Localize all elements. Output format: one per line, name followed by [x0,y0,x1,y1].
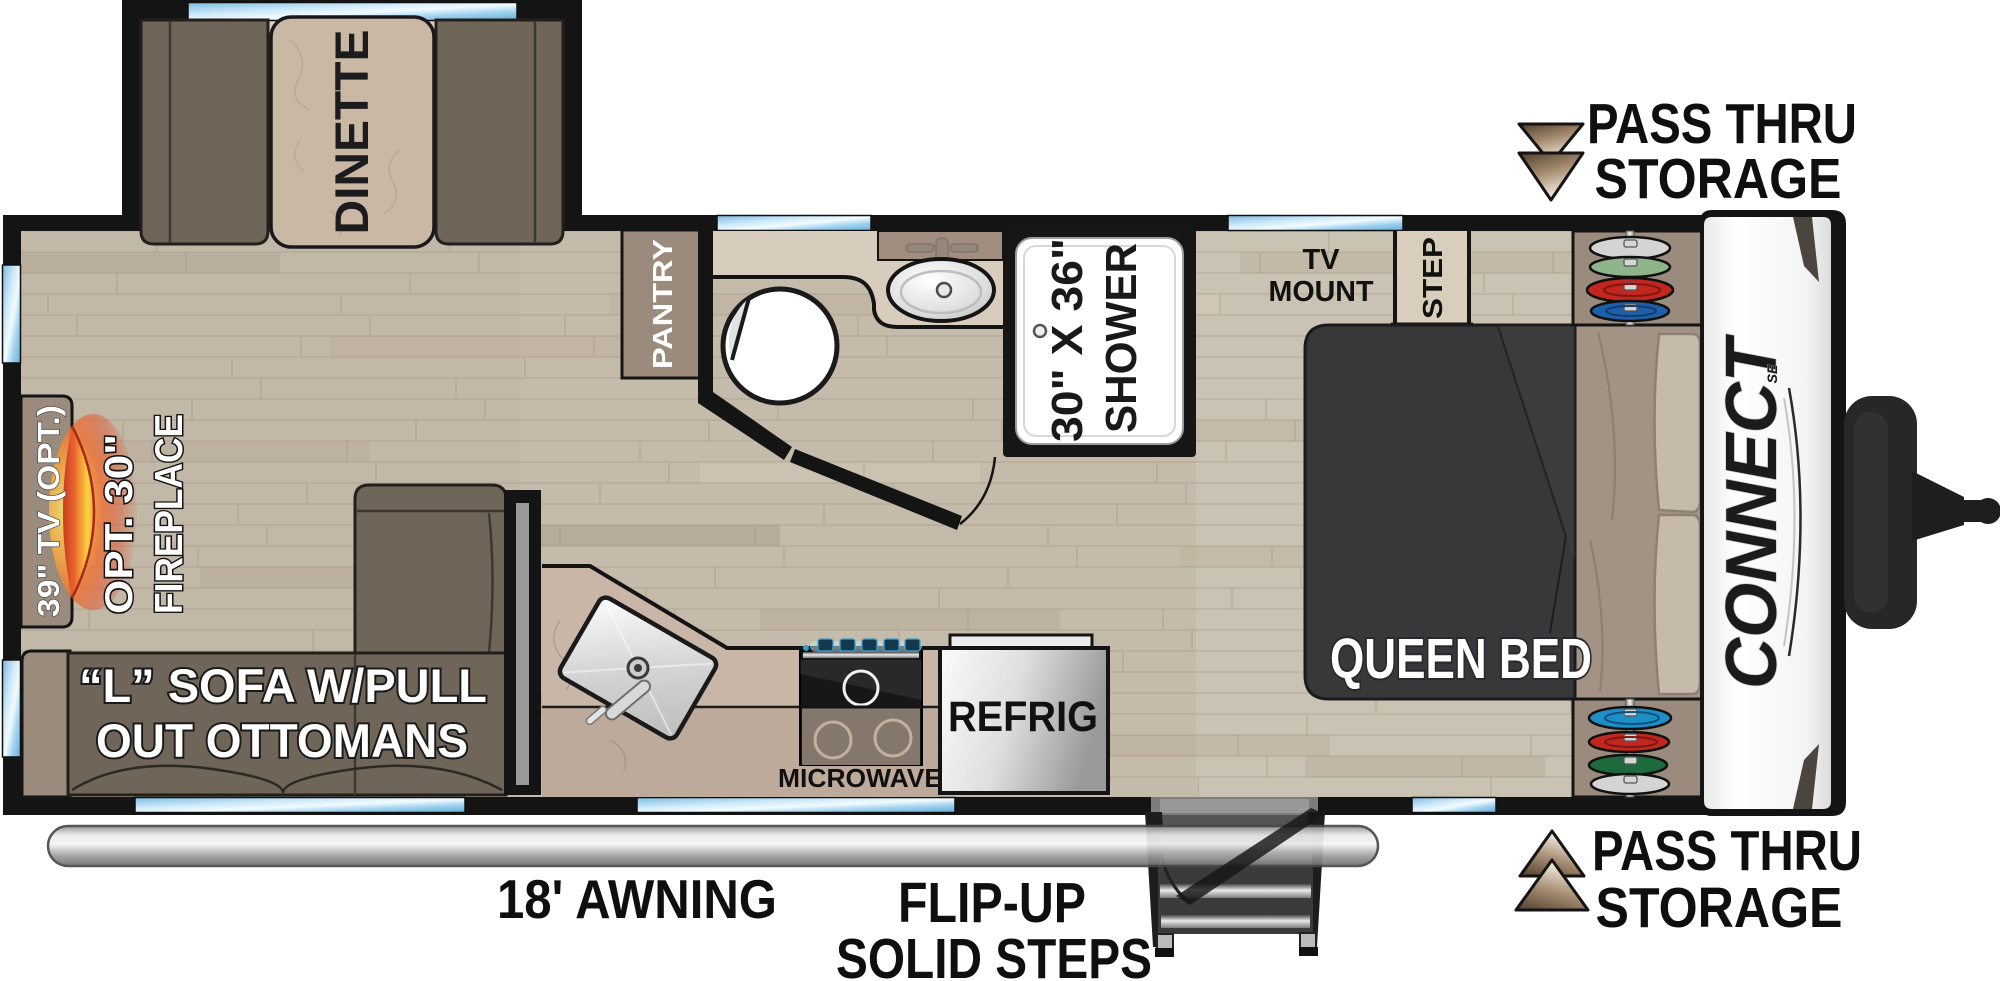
svg-text:FLIP-UP: FLIP-UP [898,871,1086,935]
svg-text:PASS THRU: PASS THRU [1592,819,1862,883]
svg-text:FIREPLACE: FIREPLACE [148,414,191,614]
svg-text:STORAGE: STORAGE [1596,876,1843,940]
svg-text:30" X 36": 30" X 36" [1043,238,1092,442]
svg-text:DINETTE: DINETTE [325,30,378,235]
svg-text:18' AWNING: 18' AWNING [497,868,777,930]
svg-text:OUT OTTOMANS: OUT OTTOMANS [96,714,468,767]
svg-text:PANTRY: PANTRY [647,239,678,369]
svg-text:“L” SOFA W/PULL: “L” SOFA W/PULL [79,659,487,712]
svg-text:MOUNT: MOUNT [1269,276,1374,308]
svg-text:SE: SE [1764,364,1780,383]
svg-text:SOLID STEPS: SOLID STEPS [836,927,1152,981]
svg-text:OPT. 30": OPT. 30" [98,434,141,614]
svg-text:39" TV (OPT.): 39" TV (OPT.) [31,405,66,617]
svg-text:CONNECT: CONNECT [1712,333,1792,689]
svg-text:REFRIG: REFRIG [948,693,1098,741]
svg-text:MICROWAVE: MICROWAVE [778,763,942,793]
svg-text:STORAGE: STORAGE [1595,147,1842,211]
svg-text:QUEEN BED: QUEEN BED [1330,627,1592,691]
svg-text:SHOWER: SHOWER [1097,243,1146,433]
svg-text:STEP: STEP [1417,237,1448,319]
svg-text:TV: TV [1302,244,1340,276]
